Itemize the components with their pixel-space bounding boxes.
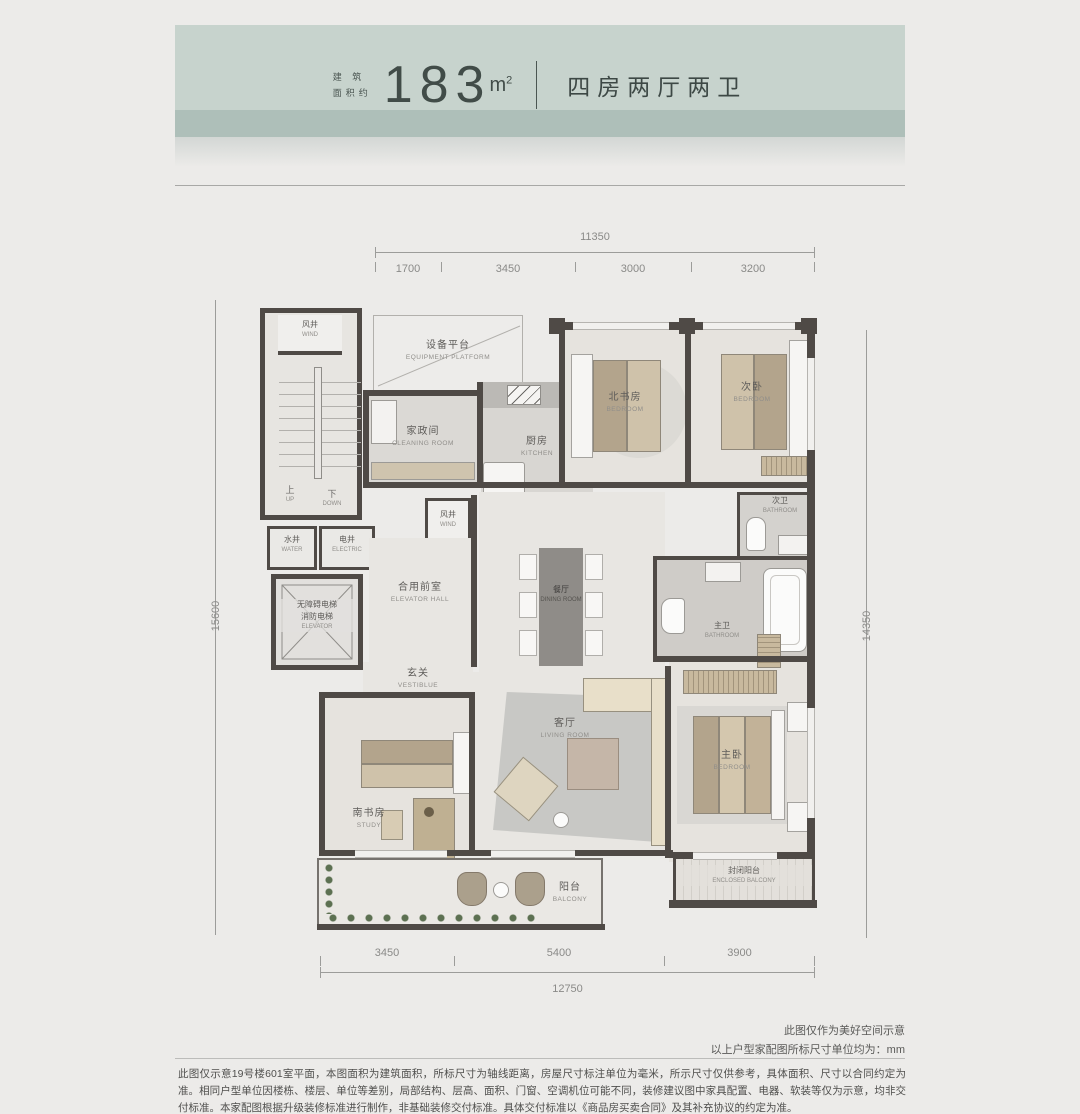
washer [371,400,397,444]
master-bed-2 [719,716,745,814]
dim-tick [320,967,321,978]
room-wind-top-label: 风井WIND [278,319,342,340]
master-headboard [771,710,785,820]
window [573,322,669,330]
dim-tick [320,956,321,966]
room-water-shaft-label: 水井WATER [270,534,314,555]
master-wardrobe-top [683,670,777,694]
second-bath-toilet [746,517,766,551]
room-stairwell: 风井WIND 上UP 下DOWN [260,308,362,520]
room-cleaning: 家政间CLEANING ROOM [367,396,479,484]
window [807,358,815,450]
wall [669,900,817,908]
fridge [483,462,525,496]
side-table [553,812,569,828]
dim-bottom-seg2: 5400 [454,947,664,959]
dim-tick [454,956,455,966]
second-bedroom-dresser [761,456,811,476]
wall [319,692,475,698]
area-prefix: 建 筑 面积约 [333,69,372,101]
stairs-rail [314,367,322,479]
stairs-down-label: 下DOWN [315,489,349,508]
wall [317,924,605,930]
header-content: 建 筑 面积约 183 m2 四房两厅两卫 [175,59,905,111]
stairs-up-label: 上UP [273,485,307,504]
room-south-study: 南书房STUDY [325,698,473,854]
balcony-plants-bottom [327,912,537,924]
dim-top-total: 11350 [375,231,815,243]
master-wardrobe-col [757,634,781,668]
wall [477,382,483,488]
cleaning-counter [371,462,475,480]
room-balcony: 阳台BALCONY [317,858,603,928]
floorplan-page: 建 筑 面积约 183 m2 四房两厅两卫 11350 1700 3450 30… [0,0,1080,1114]
room-living: 客厅LIVING ROOM [473,672,669,854]
dining-chair [519,554,537,580]
window [693,852,777,860]
dim-top-line [375,252,815,253]
wall [363,482,813,488]
wall [319,692,325,854]
second-bedroom-bed-right [754,354,787,450]
dim-tick [814,956,815,966]
notes: 此图仅作为美好空间示意 以上户型家配图所标尺寸单位均为：mm [480,1022,905,1061]
dim-top-seg2: 3450 [441,263,575,275]
area-prefix-line2: 面积约 [333,88,372,98]
dining-chair [519,630,537,656]
south-study-chair [381,810,403,840]
dining-chair [585,630,603,656]
dim-left-total: 15600 [210,586,222,646]
room-electric-shaft-label: 电井ELECTRIC [322,534,372,555]
dining-chair [585,592,603,618]
dining-chair [585,554,603,580]
dim-bottom-total: 12750 [320,983,815,995]
room-elevator-hall: 合用前室ELEVATOR HALL [369,538,471,662]
master-bed-3 [745,716,771,814]
north-study-headboard [571,354,593,458]
room-wind-shaft-top: 风井WIND [278,315,342,355]
wall [653,656,815,662]
room-elevator-hall-label: 合用前室ELEVATOR HALL [369,580,471,605]
floorplan: 风井WIND 上UP 下DOWN 设备平台EQUIPMENT PLATFORM [255,300,820,940]
dim-tick [814,967,815,978]
disclaimer-text: 此图仅示意19号楼601室平面，本图面积为建筑面积，所标尺寸为轴线距离，房屋尺寸… [178,1066,906,1114]
dim-top-seg3: 3000 [575,263,691,275]
stove-icon [507,385,541,405]
header-banner: 建 筑 面积约 183 m2 四房两厅两卫 [175,25,905,137]
room-dining: 餐厅DINING ROOM [479,492,665,672]
wall [363,390,481,396]
balcony-chair-2 [515,872,545,906]
dim-bottom-seg3: 3900 [664,947,815,959]
wall [665,666,671,858]
room-balcony-label: 阳台BALCONY [539,880,601,905]
room-water-shaft: 水井WATER [267,526,317,570]
room-enclosed-balcony: 封闭阳台ENCLOSED BALCONY [673,856,815,906]
dim-top-seg1: 1700 [375,263,441,275]
wall [559,328,565,488]
room-second-bath-label: 次卫BATHROOM [746,495,814,516]
area-unit: m2 [489,74,512,97]
balcony-table [493,882,509,898]
master-bed-1 [693,716,719,814]
disclaimer-rule [175,1058,905,1059]
coffee-table [567,738,619,790]
dim-bottom-seg1: 3450 [320,947,454,959]
dim-bottom-line [320,972,815,973]
window [355,850,447,858]
balcony-plants-left [323,862,335,914]
south-study-bed-top [361,740,453,764]
master-bath-sink [705,562,741,582]
note-line1: 此图仅作为美好空间示意 [480,1022,905,1041]
dim-tick [814,247,815,258]
room-enclosed-balcony-label: 封闭阳台ENCLOSED BALCONY [676,865,812,886]
room-master-bath-label: 主卫BATHROOM [687,620,757,641]
room-master-bath: 主卫BATHROOM [653,556,815,662]
room-wind-mid-label: 风井WIND [428,509,468,530]
dining-chair [519,592,537,618]
second-bedroom-bed-left [721,354,754,450]
area-value: 183 [384,59,492,111]
window [807,708,815,818]
area-prefix-line1: 建 筑 [333,72,366,82]
wall [471,495,477,667]
dim-top-seg4: 3200 [691,263,815,275]
master-nightstand-2 [787,802,809,832]
wall [363,390,369,488]
dim-right-total: 14350 [861,596,873,656]
dim-tick [375,247,376,258]
window [491,850,575,858]
south-study-bed-bottom [361,764,453,788]
master-bath-toilet [661,598,685,634]
header-divider [536,61,537,109]
room-master-bedroom: 主卧BEDROOM [669,662,813,862]
room-north-study: 北书房BEDROOM [563,328,687,486]
header-rule [175,185,905,186]
room-electric-shaft: 电井ELECTRIC [319,526,375,570]
elevator-cross-icon [276,579,358,665]
balcony-chair-1 [457,872,487,906]
room-second-bedroom: 次卧BEDROOM [691,328,813,486]
north-study-bed-right [627,360,661,452]
window [703,322,795,330]
wall [469,698,475,856]
room-vestibule-label: 玄关VESTIBLUE [363,666,473,691]
north-study-bed-left [593,360,627,452]
wall [685,328,691,486]
banner-shadow [175,137,905,167]
layout-type: 四房两厅两卫 [567,68,747,102]
dim-tick [664,956,665,966]
master-nightstand-1 [787,702,809,732]
dining-table [539,548,583,666]
room-elevator: 无障碍电梯 消防电梯 ELEVATOR [271,574,363,670]
